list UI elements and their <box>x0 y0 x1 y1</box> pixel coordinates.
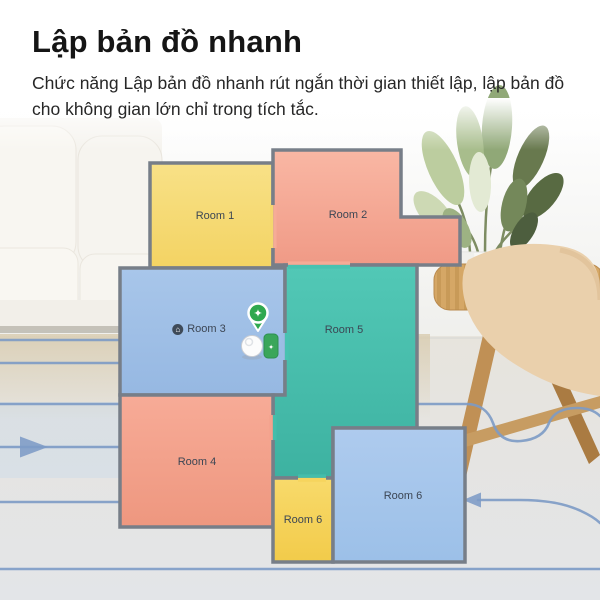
base-station-marker-icon: ⌂ <box>172 324 183 335</box>
page-subtitle: Chức năng Lập bản đồ nhanh rút ngắn thời… <box>32 70 580 122</box>
room-label-text: Room 2 <box>329 209 368 221</box>
room-label-room-3: ⌂ Room 3 <box>172 323 226 335</box>
room-label-room-6-small: Room 6 <box>284 514 323 526</box>
room-label-text: Room 5 <box>325 324 364 336</box>
promo-banner-quick-mapping: ✦ ✦ Lập bản đồ nhanh Chức năng Lập bản đ… <box>0 0 600 600</box>
header: Lập bản đồ nhanh Chức năng Lập bản đồ nh… <box>32 24 584 122</box>
room-label-text: Room 1 <box>196 210 235 222</box>
room-label-text: Room 3 <box>187 323 226 335</box>
sparkle-icon: ✦ <box>268 344 274 352</box>
room-label-text: Room 6 <box>384 490 423 502</box>
room-label-room-5: Room 5 <box>325 324 364 336</box>
room-label-text: Room 4 <box>178 456 217 468</box>
room-label-room-4: Room 4 <box>178 456 217 468</box>
page-title: Lập bản đồ nhanh <box>32 24 584 60</box>
room-label-room-1: Room 1 <box>196 210 235 222</box>
room-label-text: Room 6 <box>284 514 323 526</box>
room-label-room-6-large: Room 6 <box>384 490 423 502</box>
sparkle-icon: ✦ <box>253 308 262 320</box>
room-label-room-2: Room 2 <box>329 209 368 221</box>
robot-vacuum <box>242 336 263 357</box>
